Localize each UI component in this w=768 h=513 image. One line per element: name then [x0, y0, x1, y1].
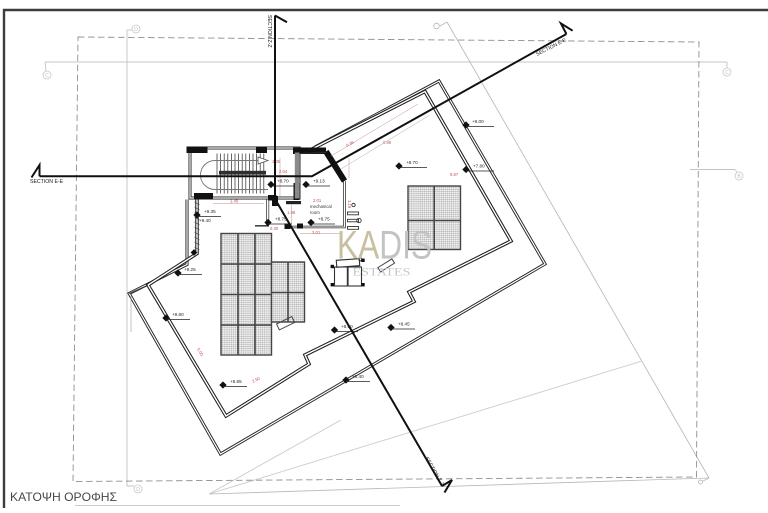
- svg-text:ΚΑΤΟΨΗ ΟΡΟΦΗΣ: ΚΑΤΟΨΗ ΟΡΟΦΗΣ: [10, 490, 117, 504]
- svg-text:+8.70: +8.70: [406, 160, 418, 165]
- svg-text:+9.35: +9.35: [204, 209, 216, 214]
- svg-text:mechanical: mechanical: [310, 204, 332, 209]
- svg-text:KADIS: KADIS: [337, 224, 432, 268]
- svg-text:3.01: 3.01: [312, 230, 321, 235]
- svg-text:D: D: [136, 487, 140, 493]
- svg-text:+9.40: +9.40: [199, 218, 211, 223]
- svg-text:0.30: 0.30: [270, 226, 279, 231]
- svg-text:+9.80: +9.80: [172, 312, 184, 317]
- svg-text:9.67: 9.67: [450, 172, 459, 177]
- svg-text:+9.25: +9.25: [184, 267, 196, 272]
- svg-text:C: C: [725, 70, 729, 76]
- svg-text:ESTATES: ESTATES: [353, 267, 411, 279]
- svg-text:D: D: [134, 27, 138, 33]
- svg-text:SECTION Z-Z: SECTION Z-Z: [266, 15, 272, 48]
- svg-text:2.04: 2.04: [279, 169, 288, 174]
- svg-text:+8.75: +8.75: [318, 217, 330, 222]
- svg-text:SECTION E-E: SECTION E-E: [30, 179, 64, 185]
- svg-text:+8.70: +8.70: [277, 179, 289, 184]
- svg-text:room: room: [310, 210, 320, 215]
- svg-text:1.19: 1.19: [347, 200, 352, 209]
- svg-text:1.35: 1.35: [272, 159, 281, 164]
- svg-text:1.40: 1.40: [230, 199, 239, 204]
- svg-text:+7.80: +7.80: [473, 164, 485, 169]
- svg-text:+8.40: +8.40: [352, 374, 364, 379]
- svg-text:2.01: 2.01: [313, 198, 322, 203]
- svg-text:+9.00: +9.00: [472, 119, 484, 124]
- svg-text:+8.45: +8.45: [398, 322, 410, 327]
- svg-text:+8.65: +8.65: [230, 379, 242, 384]
- svg-text:C: C: [45, 73, 49, 79]
- svg-text:+9.13: +9.13: [313, 179, 325, 184]
